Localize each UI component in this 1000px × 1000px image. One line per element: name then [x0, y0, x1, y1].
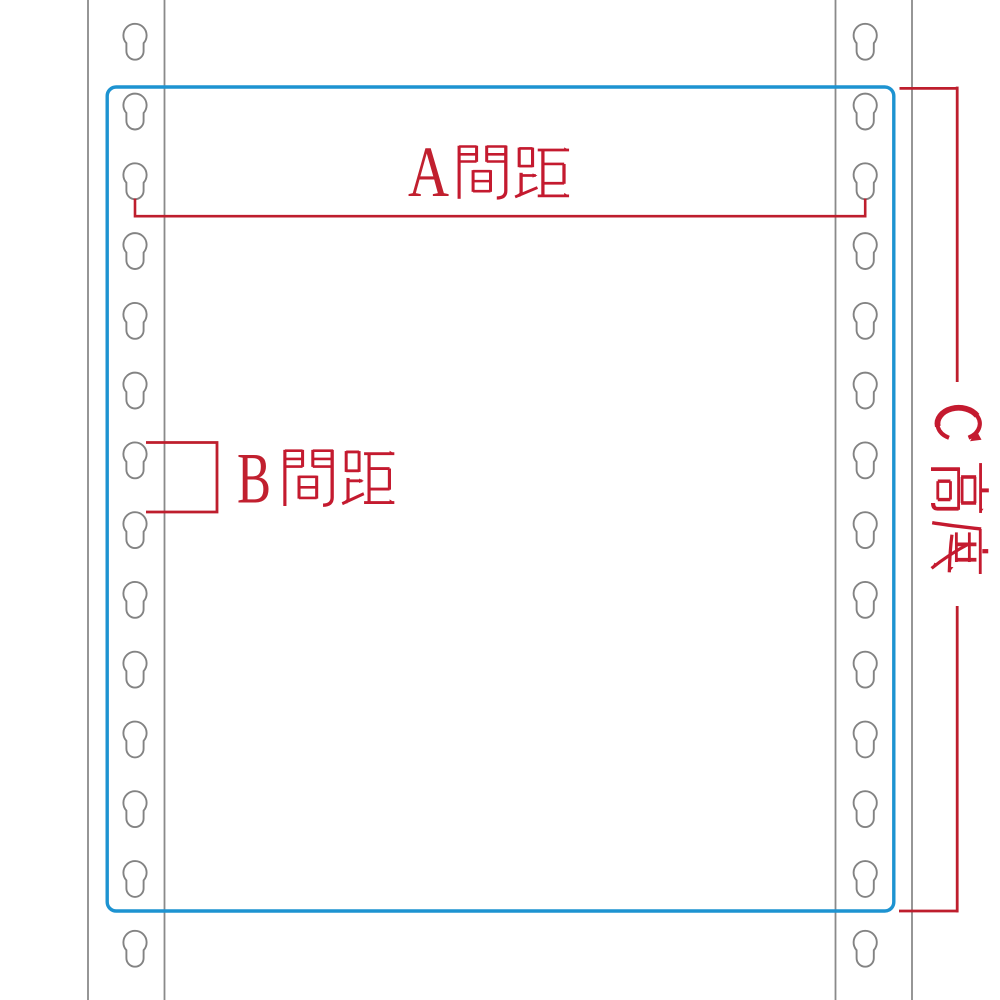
svg-text:A: A	[408, 132, 449, 212]
svg-text:B: B	[237, 439, 271, 519]
